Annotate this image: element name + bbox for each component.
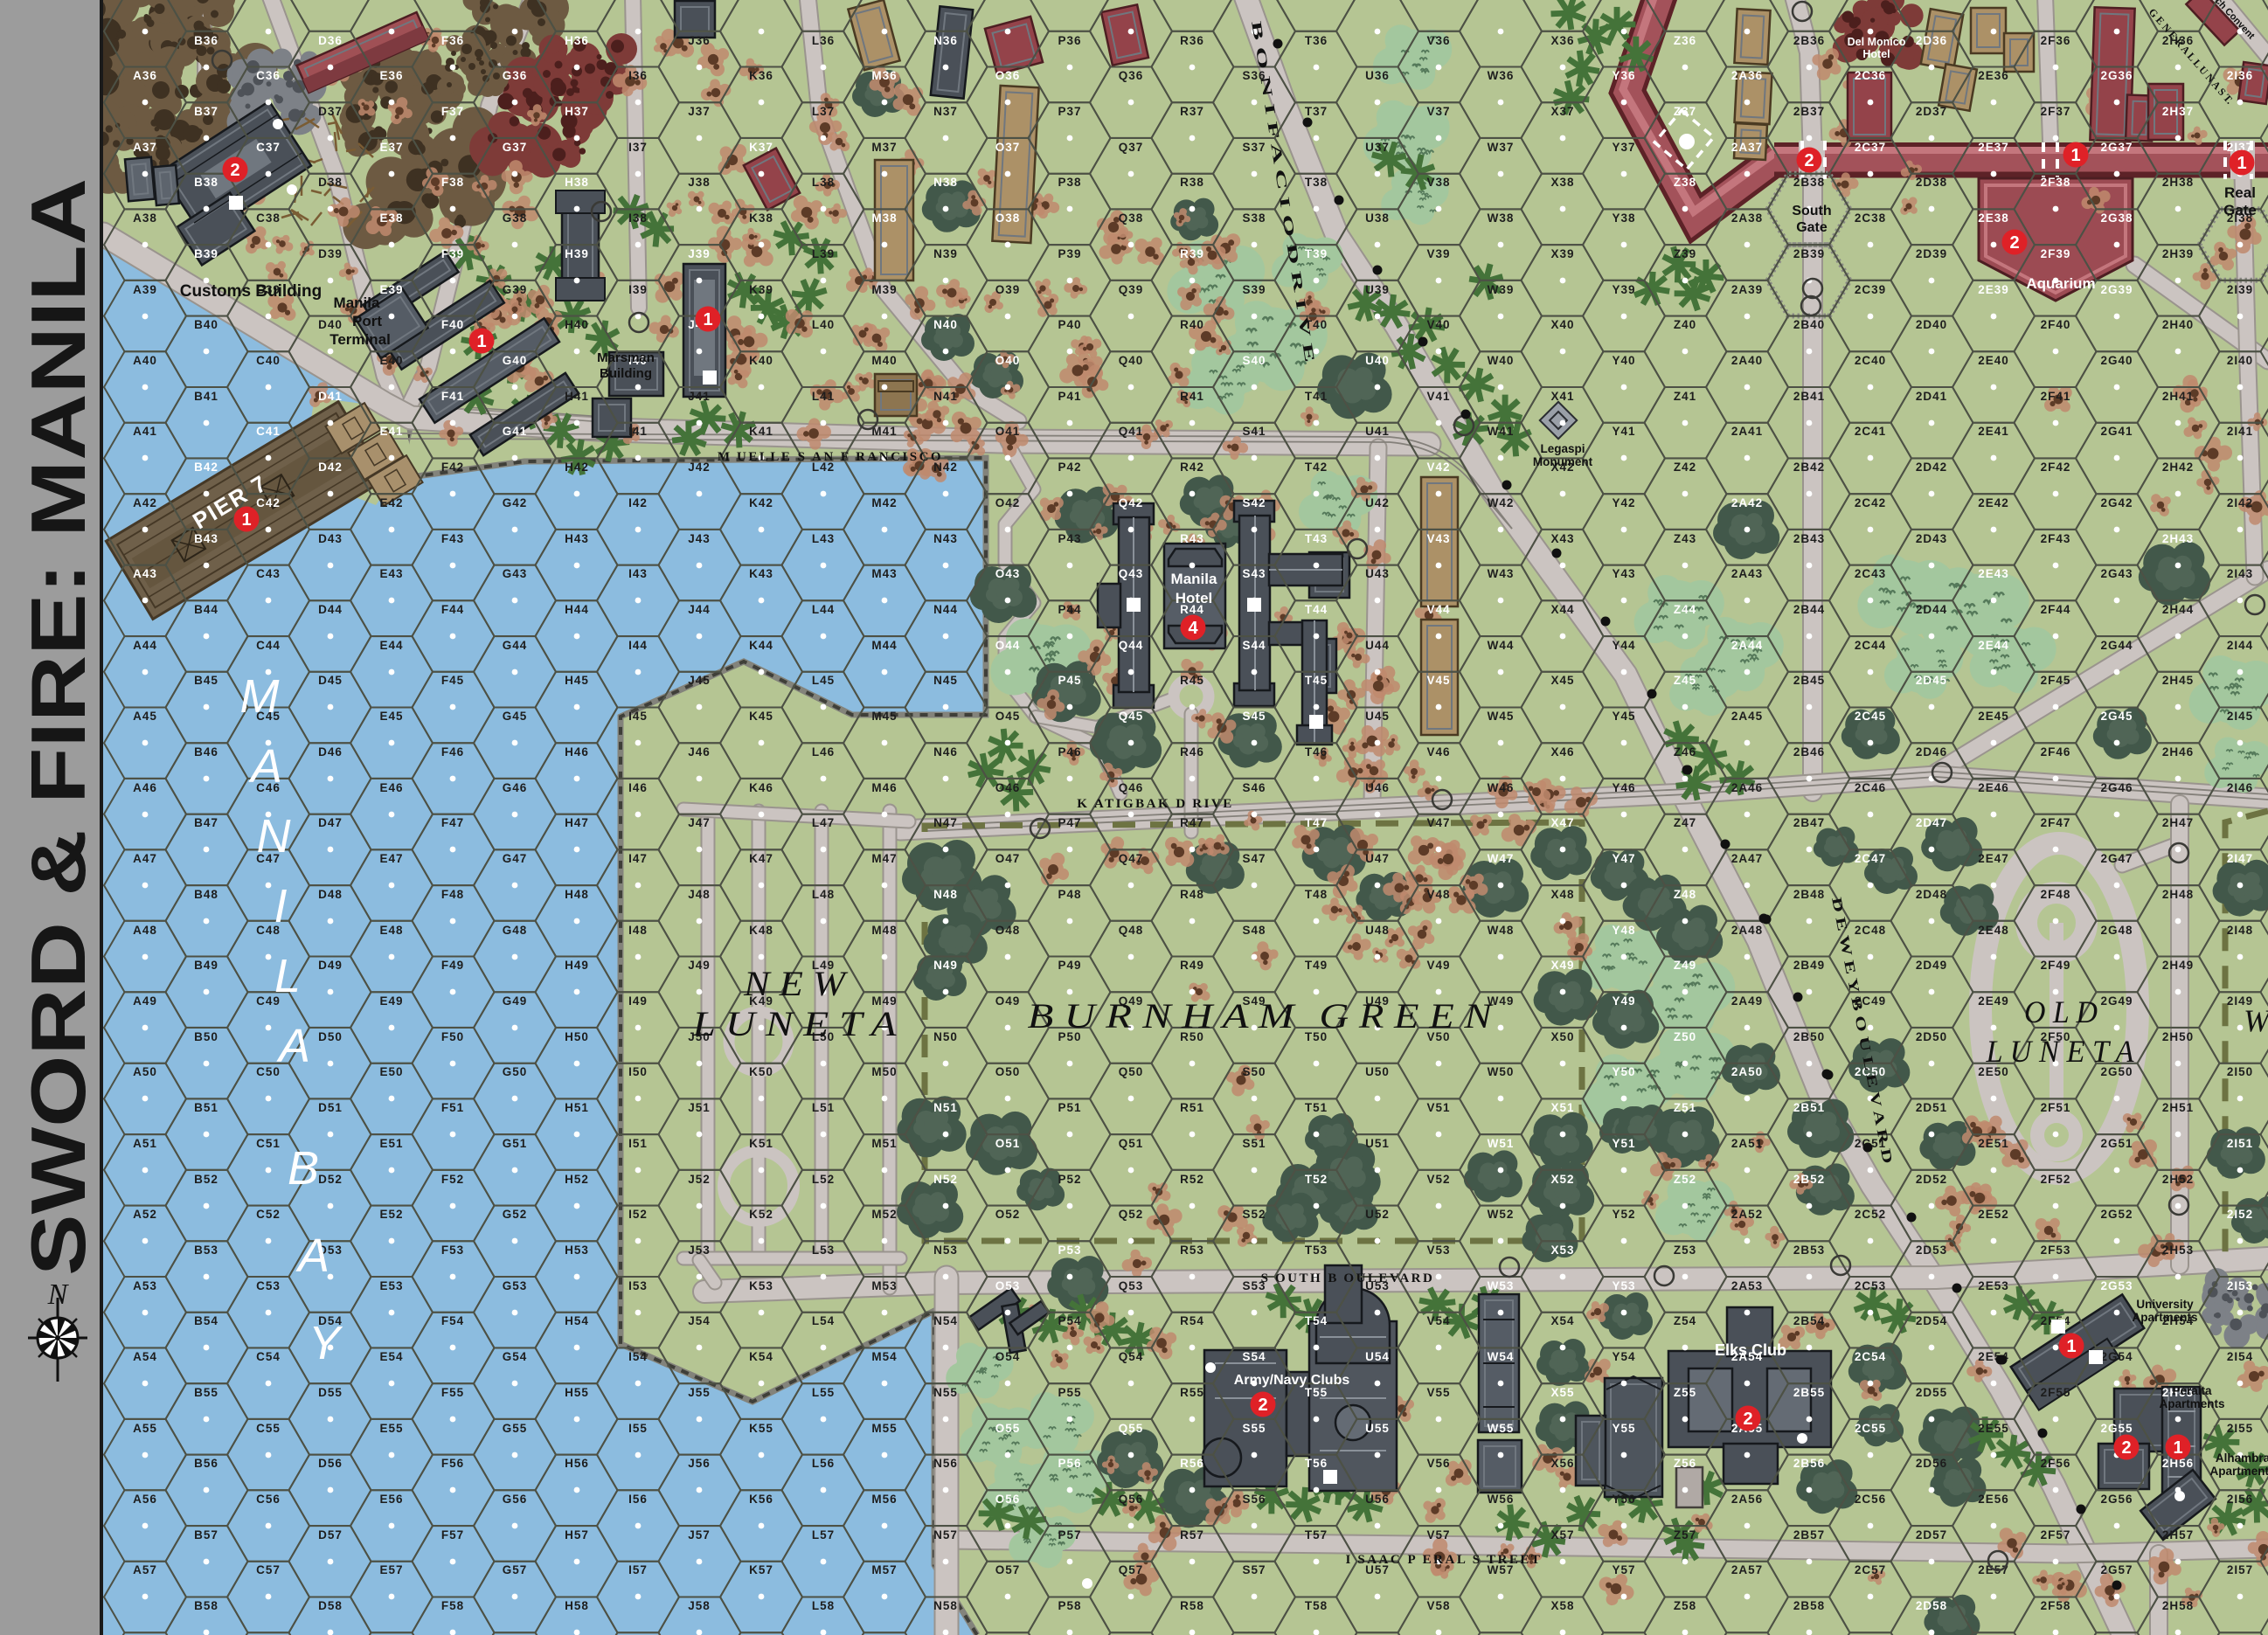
svg-text:F58: F58 [441,1599,464,1612]
svg-text:D45: D45 [318,674,343,687]
svg-text:2E51: 2E51 [1978,1137,2009,1150]
svg-text:X56: X56 [1550,1457,1574,1470]
svg-text:2G48: 2G48 [2100,924,2133,937]
svg-text:V46: V46 [1426,745,1450,759]
svg-text:R55: R55 [1180,1386,1204,1399]
svg-text:E52: E52 [379,1208,403,1221]
svg-text:2E38: 2E38 [1978,211,2009,225]
svg-text:C52: C52 [256,1208,281,1221]
svg-text:L44: L44 [812,603,835,616]
svg-text:N E W: N E W [743,964,849,1003]
svg-text:J57: J57 [688,1528,711,1541]
svg-text:N53: N53 [933,1244,958,1257]
svg-text:2E44: 2E44 [1978,639,2009,652]
svg-text:Q41: Q41 [1119,425,1144,438]
svg-text:G51: G51 [503,1137,528,1150]
svg-text:Q39: Q39 [1119,283,1144,296]
svg-text:J41: J41 [688,390,711,403]
svg-text:F49: F49 [441,959,464,972]
svg-text:Gate: Gate [2223,202,2257,218]
svg-text:2E52: 2E52 [1978,1208,2009,1221]
svg-text:X38: X38 [1550,176,1574,189]
svg-text:W53: W53 [1488,1279,1515,1292]
svg-text:I57: I57 [628,1563,648,1576]
svg-text:2: 2 [230,161,239,180]
svg-text:T44: T44 [1305,603,1328,616]
svg-text:A43: A43 [133,567,157,580]
svg-text:T58: T58 [1305,1599,1328,1612]
svg-text:2H44: 2H44 [2162,603,2194,616]
svg-text:2B48: 2B48 [1793,888,1825,901]
svg-text:I42: I42 [628,496,648,509]
svg-text:2D44: 2D44 [1916,603,1947,616]
svg-text:R36: R36 [1180,34,1204,47]
svg-text:N58: N58 [933,1599,958,1612]
svg-text:B40: B40 [194,318,218,331]
svg-text:2A39: 2A39 [1731,283,1763,296]
svg-text:2: 2 [1743,1410,1752,1429]
svg-text:L55: L55 [812,1386,835,1399]
svg-text:Z57: Z57 [1674,1528,1696,1541]
svg-text:X47: X47 [1550,816,1574,829]
svg-text:V43: V43 [1426,532,1450,545]
svg-text:S48: S48 [1242,924,1266,937]
svg-text:P43: P43 [1058,532,1081,545]
svg-text:P37: P37 [1058,105,1081,118]
svg-text:2H39: 2H39 [2162,247,2194,260]
svg-text:D38: D38 [318,176,343,189]
svg-text:Marsman: Marsman [597,350,655,365]
svg-text:D46: D46 [318,745,343,759]
svg-text:K40: K40 [749,354,773,367]
svg-text:W37: W37 [1488,141,1515,154]
svg-text:1: 1 [2173,1438,2182,1458]
svg-text:J39: J39 [688,247,711,260]
svg-text:C44: C44 [256,639,281,652]
svg-text:A53: A53 [133,1279,157,1292]
svg-text:S56: S56 [1242,1493,1266,1506]
svg-text:H36: H36 [565,34,589,47]
svg-text:2A50: 2A50 [1731,1065,1763,1078]
svg-text:N52: N52 [933,1173,958,1186]
svg-text:F42: F42 [441,461,464,474]
svg-text:V51: V51 [1426,1101,1450,1114]
svg-text:B42: B42 [194,461,218,474]
svg-text:2G53: 2G53 [2100,1279,2133,1292]
svg-text:2G39: 2G39 [2100,283,2133,296]
svg-text:S37: S37 [1242,141,1266,154]
svg-text:G36: G36 [503,69,528,82]
svg-text:N50: N50 [933,1030,958,1043]
svg-text:S39: S39 [1242,283,1266,296]
svg-text:A38: A38 [133,211,157,225]
svg-text:P39: P39 [1058,247,1081,260]
svg-text:L52: L52 [812,1173,835,1186]
svg-text:C36: C36 [256,69,281,82]
svg-text:2F52: 2F52 [2041,1173,2071,1186]
svg-text:D57: D57 [318,1528,343,1541]
svg-text:X54: X54 [1550,1314,1574,1327]
svg-text:University: University [2136,1298,2194,1311]
svg-text:Y38: Y38 [1612,211,1635,225]
svg-text:4: 4 [1188,619,1198,638]
svg-text:M54: M54 [871,1350,897,1363]
svg-text:2B36: 2B36 [1793,34,1825,47]
svg-text:2B47: 2B47 [1793,816,1825,829]
svg-text:J55: J55 [688,1386,711,1399]
svg-text:L37: L37 [812,105,835,118]
svg-text:F44: F44 [441,603,464,616]
svg-text:N54: N54 [933,1314,958,1327]
svg-text:R53: R53 [1180,1244,1204,1257]
svg-text:P57: P57 [1058,1528,1081,1541]
svg-text:Y40: Y40 [1612,354,1635,367]
svg-text:F53: F53 [441,1244,464,1257]
svg-text:H51: H51 [565,1101,589,1114]
svg-text:N40: N40 [933,318,958,331]
svg-text:I52: I52 [628,1208,648,1221]
svg-text:2E40: 2E40 [1978,354,2009,367]
svg-text:Y57: Y57 [1612,1563,1635,1576]
svg-text:Z40: Z40 [1674,318,1696,331]
svg-text:2I55: 2I55 [2227,1422,2253,1435]
svg-text:Apartments: Apartments [2159,1397,2224,1410]
svg-text:K55: K55 [749,1422,773,1435]
svg-text:2D50: 2D50 [1916,1030,1947,1043]
svg-text:K53: K53 [749,1279,773,1292]
svg-text:2D39: 2D39 [1916,247,1947,260]
svg-text:O56: O56 [995,1493,1021,1506]
svg-text:K43: K43 [749,567,773,580]
svg-text:B43: B43 [194,532,218,545]
svg-text:2H58: 2H58 [2162,1599,2194,1612]
svg-text:K44: K44 [749,639,773,652]
svg-text:K57: K57 [749,1563,773,1576]
svg-text:O37: O37 [995,141,1021,154]
svg-text:Q48: Q48 [1119,924,1144,937]
svg-text:2E49: 2E49 [1978,994,2009,1008]
svg-text:Y36: Y36 [1612,69,1635,82]
svg-text:D47: D47 [318,816,343,829]
svg-text:O L D: O L D [2024,994,2098,1029]
svg-text:N55: N55 [933,1386,958,1399]
svg-text:B U R N H A M: B U R N H A M [1028,996,1297,1036]
svg-text:B36: B36 [194,34,218,47]
svg-text:2D36: 2D36 [1916,34,1947,47]
svg-text:O49: O49 [995,994,1021,1008]
svg-text:D55: D55 [318,1386,343,1399]
svg-text:U38: U38 [1365,211,1390,225]
svg-text:M44: M44 [871,639,897,652]
svg-text:2C42: 2C42 [1855,496,1886,509]
svg-text:A51: A51 [133,1137,157,1150]
svg-text:B52: B52 [194,1173,218,1186]
svg-text:U42: U42 [1365,496,1390,509]
svg-text:Legaspi: Legaspi [1540,442,1585,455]
svg-text:Y56: Y56 [1612,1493,1635,1506]
svg-text:2A44: 2A44 [1731,639,1763,652]
svg-text:T43: T43 [1305,532,1328,545]
svg-text:S45: S45 [1242,710,1266,723]
svg-text:2A43: 2A43 [1731,567,1763,580]
svg-text:2F53: 2F53 [2041,1244,2071,1257]
svg-text:2I40: 2I40 [2227,354,2253,367]
svg-text:D49: D49 [318,959,343,972]
svg-text:Z46: Z46 [1674,745,1696,759]
svg-text:V53: V53 [1426,1244,1450,1257]
svg-text:V40: V40 [1426,318,1450,331]
svg-text:2G43: 2G43 [2100,567,2133,580]
svg-text:SWORD & FIRE: MANILA: SWORD & FIRE: MANILA [15,178,101,1276]
svg-text:X36: X36 [1550,34,1574,47]
svg-text:W54: W54 [1488,1350,1515,1363]
svg-text:2C46: 2C46 [1855,781,1886,794]
svg-text:L54: L54 [812,1314,835,1327]
svg-text:O42: O42 [995,496,1021,509]
svg-text:N48: N48 [933,888,958,901]
svg-text:Z42: Z42 [1674,461,1696,474]
svg-text:I36: I36 [628,69,648,82]
svg-text:1: 1 [2237,154,2246,173]
svg-text:U56: U56 [1365,1493,1390,1506]
svg-text:B50: B50 [194,1030,218,1043]
svg-text:2E41: 2E41 [1978,425,2009,438]
svg-text:N47: N47 [933,816,958,829]
svg-text:G37: G37 [503,141,528,154]
svg-text:O38: O38 [995,211,1021,225]
svg-text:2F56: 2F56 [2041,1457,2071,1470]
svg-text:2B42: 2B42 [1793,461,1825,474]
svg-text:M52: M52 [871,1208,897,1221]
svg-text:A46: A46 [133,781,157,794]
svg-text:Port: Port [352,313,382,329]
svg-text:O41: O41 [995,425,1021,438]
svg-text:Q57: Q57 [1119,1563,1144,1576]
svg-text:2I46: 2I46 [2227,781,2253,794]
svg-text:2B52: 2B52 [1793,1173,1825,1186]
svg-text:U48: U48 [1365,924,1390,937]
svg-text:E43: E43 [379,567,403,580]
svg-text:K37: K37 [749,141,773,154]
svg-text:M38: M38 [871,211,897,225]
svg-text:2B58: 2B58 [1793,1599,1825,1612]
svg-text:R54: R54 [1180,1314,1204,1327]
svg-text:2G41: 2G41 [2100,425,2133,438]
svg-text:R46: R46 [1180,745,1204,759]
svg-text:Z38: Z38 [1674,176,1696,189]
svg-text:L57: L57 [812,1528,835,1541]
svg-text:A37: A37 [133,141,157,154]
svg-text:J54: J54 [688,1314,711,1327]
svg-text:B49: B49 [194,959,218,972]
svg-text:E50: E50 [379,1065,403,1078]
svg-text:2D46: 2D46 [1916,745,1947,759]
svg-text:R58: R58 [1180,1599,1204,1612]
svg-text:P40: P40 [1058,318,1081,331]
svg-text:U47: U47 [1365,852,1390,865]
svg-text:W44: W44 [1488,639,1515,652]
svg-text:E44: E44 [379,639,403,652]
svg-text:2H51: 2H51 [2162,1101,2194,1114]
svg-text:2C56: 2C56 [1855,1493,1886,1506]
svg-text:2B49: 2B49 [1793,959,1825,972]
svg-text:L38: L38 [812,176,835,189]
svg-text:W39: W39 [1488,283,1515,296]
svg-text:O51: O51 [995,1137,1021,1150]
svg-text:B37: B37 [194,105,218,118]
svg-text:T48: T48 [1305,888,1328,901]
svg-text:C54: C54 [256,1350,281,1363]
svg-text:U55: U55 [1365,1422,1390,1435]
svg-text:N46: N46 [933,745,958,759]
svg-text:L41: L41 [812,390,835,403]
svg-text:A45: A45 [133,710,157,723]
svg-text:X53: X53 [1550,1244,1574,1257]
svg-text:2E47: 2E47 [1978,852,2009,865]
svg-text:Y55: Y55 [1612,1422,1635,1435]
svg-text:L39: L39 [812,247,835,260]
svg-text:H44: H44 [565,603,589,616]
svg-text:G50: G50 [503,1065,528,1078]
svg-text:2D55: 2D55 [1916,1386,1947,1399]
svg-text:F55: F55 [441,1386,464,1399]
svg-text:H38: H38 [565,176,589,189]
svg-text:1: 1 [476,332,486,351]
svg-text:Y47: Y47 [1612,852,1635,865]
svg-text:I: I [274,880,287,932]
svg-text:Terminal: Terminal [329,331,391,348]
svg-text:S38: S38 [1242,211,1266,225]
svg-text:E51: E51 [379,1137,403,1150]
svg-text:2G56: 2G56 [2100,1493,2133,1506]
svg-text:L36: L36 [812,34,835,47]
svg-text:2D37: 2D37 [1916,105,1947,118]
svg-text:K48: K48 [749,924,773,937]
svg-text:I37: I37 [628,141,648,154]
svg-text:Y44: Y44 [1612,639,1635,652]
svg-text:A50: A50 [133,1065,157,1078]
svg-text:Q44: Q44 [1119,639,1144,652]
svg-text:Z53: Z53 [1674,1244,1696,1257]
svg-text:2E46: 2E46 [1978,781,2009,794]
svg-text:Y52: Y52 [1612,1208,1635,1221]
svg-text:2F55: 2F55 [2041,1386,2071,1399]
svg-text:S54: S54 [1242,1350,1266,1363]
svg-text:2I51: 2I51 [2227,1137,2253,1150]
svg-text:U36: U36 [1365,69,1390,82]
svg-text:Q38: Q38 [1119,211,1144,225]
svg-text:O55: O55 [995,1422,1021,1435]
svg-text:2F41: 2F41 [2041,390,2071,403]
svg-text:2G42: 2G42 [2100,496,2133,509]
svg-text:D36: D36 [318,34,343,47]
svg-text:Y: Y [309,1317,343,1369]
svg-text:Q52: Q52 [1119,1208,1144,1221]
svg-text:G56: G56 [503,1493,528,1506]
svg-text:2A40: 2A40 [1731,354,1763,367]
svg-text:2C55: 2C55 [1855,1422,1886,1435]
svg-text:F48: F48 [441,888,464,901]
svg-text:M36: M36 [871,69,897,82]
svg-text:W38: W38 [1488,211,1515,225]
svg-text:V55: V55 [1426,1386,1450,1399]
svg-text:R57: R57 [1180,1528,1204,1541]
svg-text:S55: S55 [1242,1422,1266,1435]
svg-text:E54: E54 [379,1350,403,1363]
svg-text:G43: G43 [503,567,528,580]
svg-text:I SAAC P ERAL S TREET: I SAAC P ERAL S TREET [1346,1553,1543,1567]
svg-text:M37: M37 [871,141,897,154]
svg-text:W47: W47 [1488,852,1515,865]
svg-text:M46: M46 [871,781,897,794]
svg-text:V57: V57 [1426,1528,1450,1541]
svg-text:2C43: 2C43 [1855,567,1886,580]
svg-text:Q56: Q56 [1119,1493,1144,1506]
svg-text:D39: D39 [318,247,343,260]
svg-text:T55: T55 [1305,1386,1328,1399]
svg-text:C38: C38 [256,211,281,225]
svg-text:T56: T56 [1305,1457,1328,1470]
svg-text:E36: E36 [379,69,403,82]
svg-text:Y46: Y46 [1612,781,1635,794]
svg-text:E41: E41 [379,425,403,438]
svg-text:Z47: Z47 [1674,816,1696,829]
svg-text:E40: E40 [379,354,403,367]
svg-text:P51: P51 [1058,1101,1081,1114]
svg-text:1: 1 [703,310,712,329]
svg-text:B: B [288,1142,319,1195]
svg-text:W48: W48 [1488,924,1515,937]
svg-text:2D56: 2D56 [1916,1457,1947,1470]
svg-text:2C52: 2C52 [1855,1208,1886,1221]
svg-text:Y54: Y54 [1612,1350,1635,1363]
svg-text:Z44: Z44 [1674,603,1696,616]
svg-text:I39: I39 [628,283,648,296]
svg-text:R41: R41 [1180,390,1204,403]
svg-text:B58: B58 [194,1599,218,1612]
svg-text:Q54: Q54 [1119,1350,1144,1363]
svg-text:K56: K56 [749,1493,773,1506]
svg-text:P54: P54 [1058,1314,1081,1327]
svg-text:J52: J52 [688,1173,711,1186]
svg-text:2D58: 2D58 [1916,1599,1947,1612]
svg-text:2C53: 2C53 [1855,1279,1886,1292]
svg-text:2F39: 2F39 [2041,247,2071,260]
svg-text:U45: U45 [1365,710,1390,723]
svg-text:Z58: Z58 [1674,1599,1696,1612]
svg-text:V37: V37 [1426,105,1450,118]
svg-text:2G36: 2G36 [2100,69,2133,82]
svg-text:Hotel: Hotel [1862,48,1890,60]
svg-text:2F42: 2F42 [2041,461,2071,474]
svg-text:O57: O57 [995,1563,1021,1576]
svg-text:F57: F57 [441,1528,464,1541]
svg-text:2I41: 2I41 [2227,425,2253,438]
svg-text:R48: R48 [1180,888,1204,901]
svg-text:2D52: 2D52 [1916,1173,1947,1186]
svg-text:X58: X58 [1550,1599,1574,1612]
svg-text:G38: G38 [503,211,528,225]
svg-text:W46: W46 [1488,781,1515,794]
svg-text:Q50: Q50 [1119,1065,1144,1078]
svg-text:T37: T37 [1305,105,1328,118]
svg-text:2H43: 2H43 [2162,532,2194,545]
svg-text:E53: E53 [379,1279,403,1292]
svg-text:2D48: 2D48 [1916,888,1947,901]
svg-text:F51: F51 [441,1101,464,1114]
svg-text:2G37: 2G37 [2100,141,2133,154]
svg-text:T45: T45 [1305,674,1328,687]
